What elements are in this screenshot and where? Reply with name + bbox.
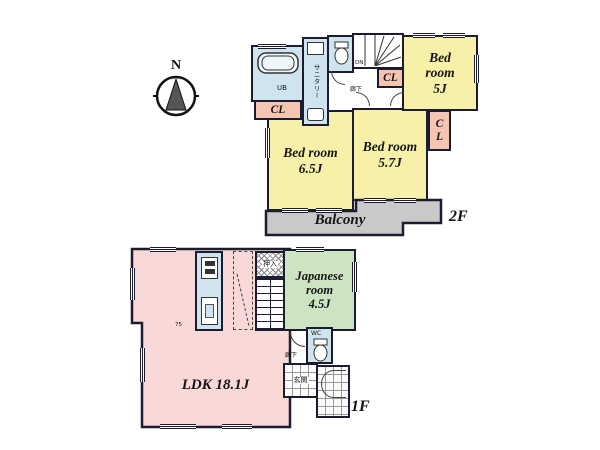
room-size: 5.7J: [378, 155, 402, 170]
room-bedroom-5-7: Bed room 5.7J: [352, 108, 428, 201]
genkan-label: 玄関: [293, 377, 309, 385]
window-marker: [258, 44, 286, 49]
floor1-label: 1F: [351, 398, 370, 416]
counter-dashed-outline: [233, 251, 253, 330]
ldk-label: LDK 18.1J: [158, 377, 273, 394]
window-marker: [413, 33, 435, 38]
bath-label: UB: [277, 84, 287, 92]
sanitary-label: サニタリー: [304, 39, 327, 124]
closet-side: CL: [428, 110, 451, 151]
room-bedroom-5: Bed room 5J: [402, 35, 478, 111]
closet-bath: CL: [254, 100, 302, 120]
floor2-label: 2F: [449, 208, 468, 226]
closet-label: CL: [379, 70, 402, 86]
room-name: Bed room: [414, 50, 466, 80]
room-name: Bed room: [283, 145, 337, 160]
window-marker: [316, 208, 342, 213]
door-arc: [331, 71, 345, 85]
room-japanese: Japanese room 4.5J: [283, 249, 356, 331]
door-arc: [390, 92, 404, 106]
window-marker: [296, 247, 324, 252]
room-size: 5J: [433, 81, 447, 96]
room-size: 4.5J: [309, 297, 331, 311]
door-arc: [356, 92, 370, 106]
oshiire-label: 押入: [262, 261, 278, 269]
compass-icon: N: [148, 56, 206, 120]
room-wc: WC: [306, 327, 333, 364]
stairs-divider: [270, 280, 271, 329]
room-bath: UB: [251, 45, 306, 102]
compass-north-label: N: [171, 58, 181, 73]
balcony-label: Balcony: [290, 212, 390, 229]
closet-hall: CL: [377, 68, 404, 88]
window-marker: [130, 268, 135, 300]
stairs-dn-label: DN: [355, 60, 363, 66]
window-marker: [140, 348, 145, 382]
window-marker: [364, 198, 386, 203]
oshiire-closet: 押入: [255, 251, 285, 278]
hallway-1f-label: 廊下: [285, 350, 297, 359]
stove-icon: [201, 257, 218, 279]
bathtub-icon: [257, 52, 299, 74]
genkan-entry: 玄関: [283, 363, 318, 398]
window-marker: [443, 33, 465, 38]
room-toilet-2f: [327, 35, 354, 73]
window-marker: [282, 208, 308, 213]
room-sanitary: サニタリー: [302, 37, 329, 126]
toilet-icon: [333, 41, 350, 65]
door-width-annotation: 75: [175, 322, 182, 328]
toilet-icon: [312, 338, 329, 362]
room-size: 6.5J: [299, 161, 323, 176]
window-marker: [265, 128, 270, 158]
front-door-arc: [321, 370, 346, 398]
window-marker: [160, 424, 196, 429]
window-marker: [150, 247, 176, 252]
kitchen-sink-icon: [201, 297, 218, 325]
kitchen-unit: [195, 251, 223, 331]
entrance-porch: [316, 365, 350, 418]
window-marker: [352, 262, 357, 292]
closet-label: CL: [434, 118, 445, 142]
stairs-1f: [255, 278, 285, 331]
wc-label: WC: [311, 330, 321, 337]
room-name: Bed room: [363, 139, 417, 154]
floor-plan: N Bed room 6.5J Bed room 5.7J Bed room 5…: [0, 0, 600, 450]
window-marker: [474, 55, 479, 83]
window-marker: [222, 424, 252, 429]
closet-label: CL: [256, 102, 300, 118]
window-marker: [394, 198, 416, 203]
room-name: Japanese room: [289, 269, 351, 297]
